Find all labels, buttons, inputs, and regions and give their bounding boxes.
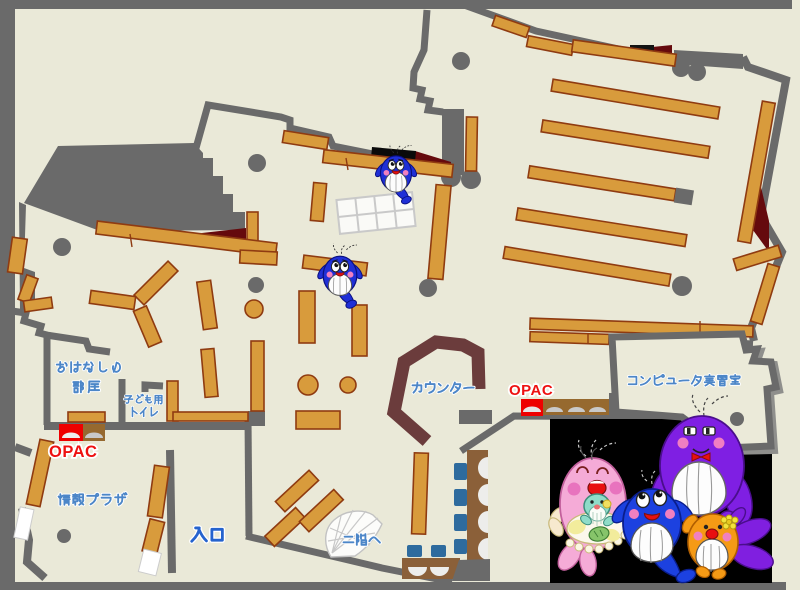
svg-text:OPAC: OPAC [509, 382, 553, 399]
svg-text:OPAC: OPAC [49, 443, 97, 461]
